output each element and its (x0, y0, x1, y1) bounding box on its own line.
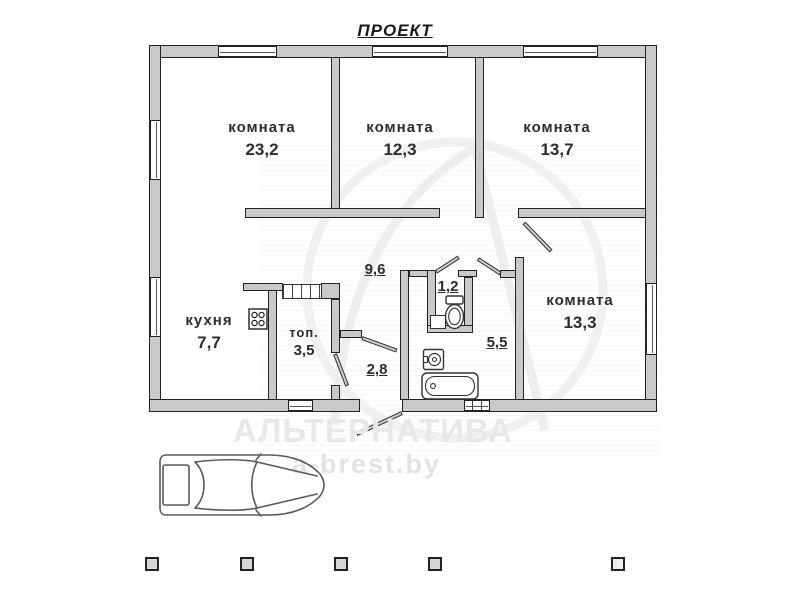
room-name: кухня (150, 312, 268, 330)
window (150, 120, 161, 180)
toilet-icon (443, 295, 469, 331)
room-label-bedroom3: комната 13,3 (505, 292, 655, 333)
window-mullion (472, 401, 473, 410)
fence-post (145, 557, 159, 571)
bathtub-icon (421, 372, 480, 400)
room-label-bedroom1: комната 12,3 (325, 119, 475, 160)
room-label-boiler: топ. 3,5 (272, 325, 336, 360)
car-illustration (157, 452, 331, 518)
page-title: ПРОЕКТ (330, 21, 460, 41)
fence-post (240, 557, 254, 571)
wall-bath-top-right-stub (500, 270, 516, 278)
vent-shaft-icon (430, 315, 446, 329)
room-name: комната (187, 119, 337, 137)
area-label-wc: 1,2 (430, 278, 466, 296)
fence-post (334, 557, 348, 571)
wall-below-rooms-left (245, 208, 440, 218)
wall-below-room3 (518, 208, 646, 218)
area-label-entry: 2,8 (359, 361, 395, 379)
room-name: топ. (272, 325, 336, 341)
window (523, 46, 598, 57)
area-label-hallway: 9,6 (357, 261, 393, 279)
window (464, 400, 490, 411)
area-label-bathroom: 5,5 (479, 334, 515, 352)
room-name: комната (505, 292, 655, 310)
fence-post (428, 557, 442, 571)
wall-outer-left (149, 45, 161, 412)
wall-outer-bottom-right (402, 399, 657, 412)
room-area: 12,3 (325, 140, 475, 160)
window (372, 46, 448, 57)
room-name: комната (325, 119, 475, 137)
room-area: 23,2 (187, 140, 337, 160)
kitchen-counter-icon (282, 284, 322, 299)
sink-icon (422, 348, 445, 371)
window (288, 400, 313, 411)
fence-post (611, 557, 625, 571)
wall-outer-right (645, 45, 657, 412)
floor-plan-canvas: ПРОЕКТ (0, 0, 800, 599)
wall-hall-entry-stub (340, 330, 362, 338)
room-area: 13,3 (505, 313, 655, 333)
room-label-kitchen: кухня 7,7 (150, 312, 268, 353)
wall-wc-top-stub (458, 270, 477, 277)
room-area: 3,5 (272, 342, 336, 360)
room-label-bedroom2: комната 13,7 (482, 119, 632, 160)
window-mullion (481, 401, 482, 410)
watermark-brand: АЛЬТЕРНАТИВА (233, 412, 513, 450)
wall-boiler-corner (321, 283, 340, 299)
window (218, 46, 277, 57)
wall-bath-top-left (409, 270, 428, 277)
room-area: 13,7 (482, 140, 632, 160)
wall-kitchen-top (243, 283, 283, 291)
wall-entry-bath (400, 270, 409, 400)
room-label-living: комната 23,2 (187, 119, 337, 160)
room-name: комната (482, 119, 632, 137)
wall-boiler-right-stub (331, 385, 340, 400)
room-area: 7,7 (150, 333, 268, 353)
wall-outer-bottom-left (149, 399, 360, 412)
